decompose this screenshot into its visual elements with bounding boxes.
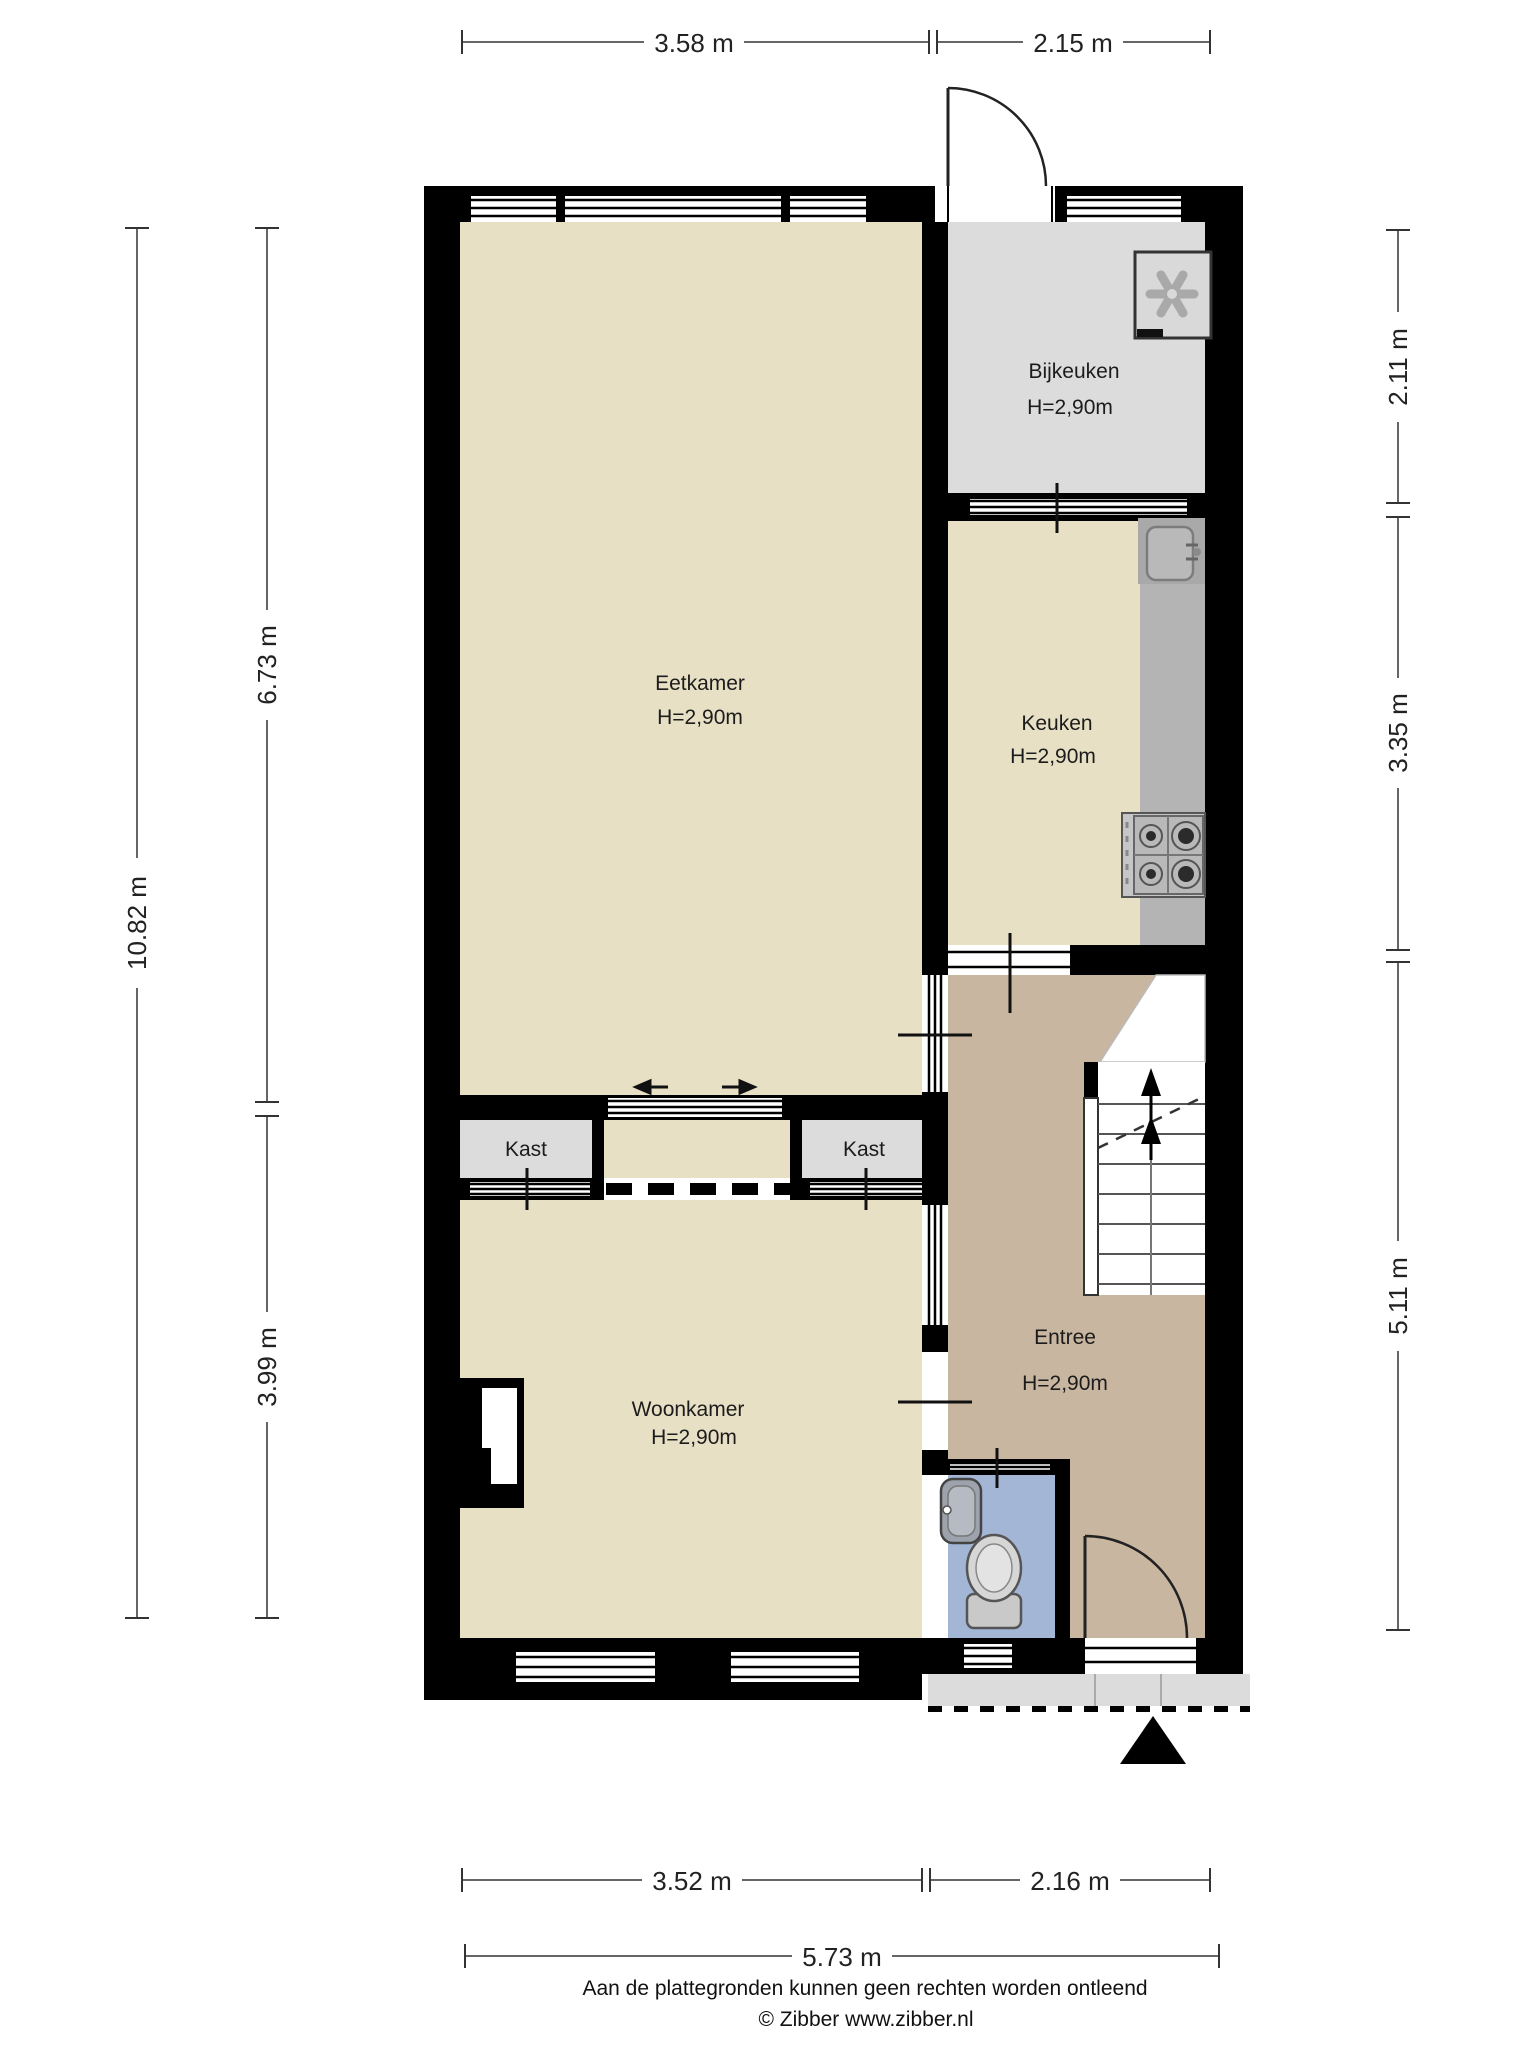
- label-bijkeuken-height: H=2,90m: [1027, 396, 1113, 419]
- dim-bottom-total: 5.73 m: [802, 1942, 882, 1972]
- dim-bottom: 3.52 m 2.16 m 5.73 m: [462, 1860, 1219, 1976]
- dim-right-c: 5.11 m: [1383, 1257, 1413, 1335]
- wall-kast1-side: [592, 1120, 604, 1178]
- floors: [460, 222, 1205, 1638]
- label-entree-height: H=2,90m: [1022, 1372, 1108, 1395]
- label-keuken-height: H=2,90m: [1010, 745, 1096, 768]
- label-bijkeuken: Bijkeuken: [1028, 360, 1119, 383]
- dim-right: 2.11 m 3.35 m 5.11 m: [1376, 230, 1420, 1630]
- window-bottom-2: [722, 1652, 868, 1682]
- window-bottom-wc: [964, 1644, 1012, 1668]
- gas-hob-icon: [1122, 813, 1205, 897]
- wall-divider-upper: [922, 222, 948, 975]
- entrance-arrow-icon: [1120, 1716, 1186, 1764]
- stairs-banister: [1084, 1098, 1098, 1295]
- label-eetkamer-height: H=2,90m: [657, 706, 743, 729]
- footer-disclaimer: Aan de plattegronden kunnen geen rechten…: [582, 1977, 1147, 2000]
- label-kast-right: Kast: [843, 1138, 885, 1161]
- label-kast-left: Kast: [505, 1138, 547, 1161]
- dim-left-a: 6.73 m: [252, 625, 282, 705]
- dim-left-b: 3.99 m: [252, 1327, 282, 1407]
- wall-left: [424, 186, 460, 1700]
- window-top-eetkamer: [462, 196, 875, 222]
- footer: Aan de plattegronden kunnen geen rechten…: [582, 1977, 1147, 2031]
- chimney-breast: [456, 1378, 524, 1508]
- passage-floor: [604, 1120, 790, 1178]
- dim-right-b: 3.35 m: [1383, 693, 1413, 773]
- label-keuken: Keuken: [1021, 712, 1092, 735]
- back-door-swing-arc: [948, 88, 1046, 186]
- wall-kast2-side: [790, 1120, 802, 1178]
- fan-unit-icon: [1135, 252, 1211, 338]
- label-woonkamer: Woonkamer: [632, 1398, 745, 1421]
- room-floor-eetkamer: [460, 222, 922, 1095]
- wall-divider-mid: [922, 1325, 948, 1352]
- dim-bottom-b: 2.16 m: [1030, 1866, 1110, 1896]
- dim-top-b: 2.15 m: [1033, 28, 1113, 58]
- label-woonkamer-height: H=2,90m: [651, 1426, 737, 1449]
- window-top-bijkeuken: [1058, 196, 1190, 222]
- hand-basin-icon: [941, 1479, 981, 1543]
- porch-tiles: [928, 1674, 1250, 1706]
- dim-left: 10.82 m 6.73 m 3.99 m: [115, 228, 289, 1618]
- label-eetkamer: Eetkamer: [655, 672, 745, 695]
- dim-right-a: 2.11 m: [1383, 328, 1413, 406]
- dim-left-total: 10.82 m: [122, 876, 152, 970]
- back-door: [935, 88, 1055, 222]
- dim-top-a: 3.58 m: [654, 28, 734, 58]
- wall-stair-stub: [1084, 1062, 1100, 1098]
- kitchen-sink-icon: [1147, 527, 1201, 580]
- porch: [928, 1674, 1250, 1764]
- window-bottom-1: [507, 1652, 664, 1682]
- wall-right: [1205, 186, 1243, 1674]
- floor-plan: Eetkamer H=2,90m Bijkeuken H=2,90m Keuke…: [0, 0, 1536, 2048]
- wall-wc-right: [1055, 1475, 1070, 1638]
- footer-copyright: © Zibber www.zibber.nl: [758, 2008, 973, 2031]
- label-entree: Entree: [1034, 1326, 1096, 1349]
- wall-divider-kast: [922, 1092, 948, 1205]
- page: { "rooms": { "eetkamer": { "name": "Eetk…: [0, 0, 1536, 2048]
- toilet-icon: [967, 1535, 1021, 1628]
- dim-top: 3.58 m 2.15 m: [462, 22, 1210, 62]
- dim-bottom-a: 3.52 m: [652, 1866, 732, 1896]
